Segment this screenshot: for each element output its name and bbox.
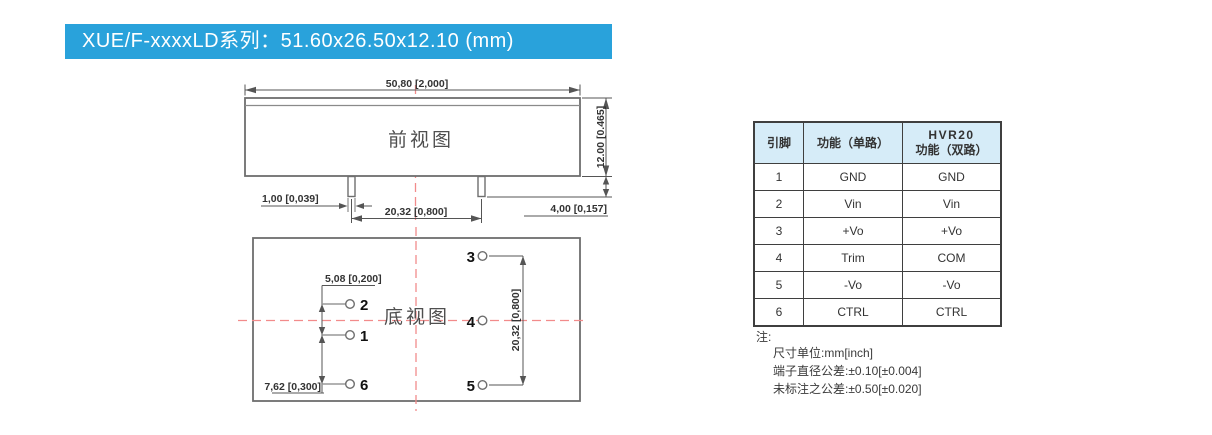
cell-pin: 4	[754, 245, 804, 272]
cell-pin: 6	[754, 299, 804, 327]
header-single-output: 功能（单路）	[804, 122, 903, 164]
table-row: 1 GND GND	[754, 164, 1001, 191]
cell-pin: 1	[754, 164, 804, 191]
header-pin: 引脚	[754, 122, 804, 164]
cell-single: Trim	[804, 245, 903, 272]
pin-hole-3	[478, 252, 487, 261]
dim-pin-width-label: 1,00 [0,039]	[262, 193, 319, 205]
front-view: 前视图 50,80 [2,000] 12.00 [0.465]	[245, 78, 612, 223]
pin-hole-2	[346, 300, 355, 309]
dim-body-width-label: 50,80 [2,000]	[386, 78, 448, 90]
arrow	[471, 215, 482, 221]
dim-pitch-1-6-label: 7,62 [0,300]	[264, 381, 321, 393]
table-row: 3 +Vo +Vo	[754, 218, 1001, 245]
cell-single: +Vo	[804, 218, 903, 245]
arrow	[352, 215, 363, 221]
notes-block: 注: 尺寸单位:mm[inch] 端子直径公差:±0.10[±0.004] 未标…	[756, 330, 922, 398]
arrow	[245, 87, 256, 93]
cell-pin: 5	[754, 272, 804, 299]
cell-dual: CTRL	[903, 299, 1002, 327]
note-line-general-tolerance: 未标注之公差:±0.50[±0.020]	[773, 380, 922, 398]
pin-hole-6	[346, 380, 355, 389]
header-dual-output: HVR20 功能（双路）	[903, 122, 1002, 164]
note-line-units: 尺寸单位:mm[inch]	[773, 344, 922, 362]
cell-pin: 3	[754, 218, 804, 245]
cell-dual: +Vo	[903, 218, 1002, 245]
bottom-view-label: 底视图	[384, 306, 450, 328]
table-row: 6 CTRL CTRL	[754, 299, 1001, 327]
pin-number-2: 2	[360, 297, 368, 314]
pin-number-6: 6	[360, 377, 368, 394]
datasheet-page: XUE/F-xxxxLD系列：51.60x26.50x12.10 (mm) 前视…	[0, 0, 1212, 435]
header-dual-line1: HVR20	[907, 128, 996, 143]
dim-pitch-2-1-label: 5,08 [0,200]	[325, 273, 382, 285]
header-dual-line2: 功能（双路）	[907, 143, 996, 158]
pin-number-4: 4	[467, 314, 476, 331]
arrow	[603, 177, 609, 185]
cell-single: GND	[804, 164, 903, 191]
cell-single: Vin	[804, 191, 903, 218]
front-view-label: 前视图	[388, 129, 454, 151]
bottom-view: 底视图 5,08 [0,200] 7,62 [0,300]	[238, 227, 586, 411]
front-pin-left	[348, 177, 355, 197]
arrow	[356, 203, 365, 209]
pin-number-3: 3	[467, 249, 475, 266]
cell-pin: 2	[754, 191, 804, 218]
cell-single: CTRL	[804, 299, 903, 327]
dim-front-pin-pitch-label: 20,32 [0,800]	[385, 206, 447, 218]
table-row: 2 Vin Vin	[754, 191, 1001, 218]
table-row: 4 Trim COM	[754, 245, 1001, 272]
table-row: 5 -Vo -Vo	[754, 272, 1001, 299]
pin-hole-4	[478, 316, 487, 325]
pin-function-table: 引脚 功能（单路） HVR20 功能（双路） 1 GND GND 2 Vin V…	[753, 121, 1002, 327]
cell-dual: COM	[903, 245, 1002, 272]
pin-number-5: 5	[467, 378, 475, 395]
arrow	[603, 189, 609, 197]
arrow	[569, 87, 580, 93]
notes-label: 注:	[756, 330, 922, 344]
front-pin-right	[478, 177, 485, 197]
dim-pin-length-label: 4,00 [0,157]	[550, 203, 607, 215]
mechanical-drawing: 前视图 50,80 [2,000] 12.00 [0.465]	[0, 0, 1212, 435]
dim-pitch-3-5-label: 20,32 [0,800]	[510, 289, 522, 351]
pin-number-1: 1	[360, 328, 368, 345]
note-line-pin-tolerance: 端子直径公差:±0.10[±0.004]	[773, 362, 922, 380]
pin-hole-5	[478, 381, 487, 390]
dim-body-height-label: 12.00 [0.465]	[595, 106, 607, 168]
cell-dual: Vin	[903, 191, 1002, 218]
cell-dual: GND	[903, 164, 1002, 191]
table-header-row: 引脚 功能（单路） HVR20 功能（双路）	[754, 122, 1001, 164]
cell-single: -Vo	[804, 272, 903, 299]
cell-dual: -Vo	[903, 272, 1002, 299]
pin-hole-1	[346, 331, 355, 340]
arrow	[339, 203, 348, 209]
